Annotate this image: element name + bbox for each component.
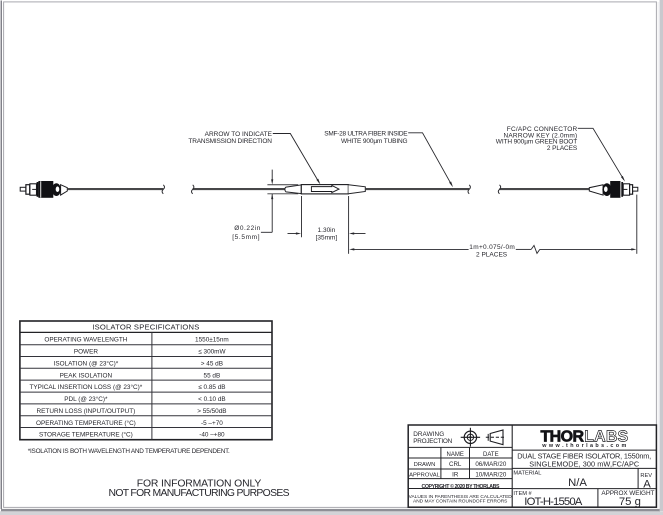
svg-text:POWER: POWER [74, 349, 99, 356]
svg-text:> 45 dB: > 45 dB [201, 361, 223, 368]
svg-text:*ISOLATION IS BOTH WAVELENGTH: *ISOLATION IS BOTH WAVELENGTH AND TEMPER… [28, 448, 230, 455]
svg-text:w w w . t h o r l a b s . c o: w w w . t h o r l a b s . c o m [541, 443, 626, 449]
svg-text:APPROVAL: APPROVAL [409, 472, 441, 478]
svg-text:A: A [643, 478, 651, 490]
svg-text:MATERIAL: MATERIAL [513, 470, 541, 476]
svg-text:OPERATING WAVELENGTH: OPERATING WAVELENGTH [44, 336, 127, 343]
svg-text:IOT-H-1550A: IOT-H-1550A [524, 496, 582, 508]
svg-text:OPERATING TEMPERATURE (°C): OPERATING TEMPERATURE (°C) [36, 419, 136, 427]
svg-text:1550±15nm: 1550±15nm [195, 336, 229, 343]
svg-text:75 g: 75 g [619, 496, 641, 508]
svg-text:-40 –+80: -40 –+80 [199, 432, 225, 439]
svg-text:CRL: CRL [449, 461, 462, 468]
svg-text:TYPICAL INSERTION LOSS (@ 23°C: TYPICAL INSERTION LOSS (@ 23°C)* [30, 383, 143, 391]
svg-text:[35mm]: [35mm] [316, 234, 338, 241]
svg-text:1m+0.075/-0m: 1m+0.075/-0m [469, 244, 515, 251]
svg-text:Ø0.22in: Ø0.22in [234, 225, 261, 232]
svg-text:WHITE 900µm TUBING: WHITE 900µm TUBING [341, 138, 408, 145]
svg-text:ISOLATION (@ 23°C)*: ISOLATION (@ 23°C)* [54, 360, 119, 368]
svg-text:NAME: NAME [447, 452, 464, 458]
svg-text:2 PLACES: 2 PLACES [476, 251, 508, 258]
svg-text:SINGLEMODE, 300 mW,FC/APC: SINGLEMODE, 300 mW,FC/APC [529, 459, 639, 468]
svg-text:1.30in: 1.30in [318, 227, 336, 234]
svg-text:ISOLATOR SPECIFICATIONS: ISOLATOR SPECIFICATIONS [92, 322, 199, 331]
svg-text:N/A: N/A [568, 477, 587, 489]
svg-text:DRAWING: DRAWING [413, 431, 444, 438]
svg-text:ARROW TO INDICATE: ARROW TO INDICATE [205, 131, 273, 138]
svg-text:PEAK ISOLATION: PEAK ISOLATION [60, 372, 113, 379]
svg-text:06/MAR/20: 06/MAR/20 [475, 461, 507, 468]
svg-text:SMF-28 ULTRA FIBER INSIDE: SMF-28 ULTRA FIBER INSIDE [324, 131, 408, 138]
svg-text:< 0.10 dB: < 0.10 dB [198, 396, 226, 403]
svg-text:COPYRIGHT © 2020 BY THORLABS: COPYRIGHT © 2020 BY THORLABS [422, 483, 501, 490]
svg-text:IR: IR [452, 471, 459, 478]
svg-text:DRAWN: DRAWN [414, 462, 436, 468]
svg-text:2 PLACES: 2 PLACES [547, 145, 578, 152]
svg-text:≤ 0.85 dB: ≤ 0.85 dB [198, 384, 225, 391]
svg-text:[5.5mm]: [5.5mm] [232, 234, 259, 241]
svg-text:10/MAR/20: 10/MAR/20 [475, 472, 507, 479]
svg-text:NOT FOR MANUFACTURING PURPOSES: NOT FOR MANUFACTURING PURPOSES [109, 488, 290, 499]
svg-text:STORAGE TEMPERATURE (°C): STORAGE TEMPERATURE (°C) [39, 431, 133, 439]
svg-text:AND MAY CONTAIN ROUNDOFF ERROR: AND MAY CONTAIN ROUNDOFF ERRORS [413, 499, 507, 505]
svg-text:TRANSMISSION DIRECTION: TRANSMISSION DIRECTION [188, 138, 272, 145]
svg-text:DATE: DATE [483, 452, 499, 458]
svg-text:≤ 300mW: ≤ 300mW [198, 349, 226, 356]
svg-text:PROJECTION: PROJECTION [413, 438, 452, 445]
svg-text:-5 –+70: -5 –+70 [201, 420, 223, 427]
svg-text:55 dB: 55 dB [204, 372, 221, 379]
svg-text:RETURN LOSS (INPUT/OUTPUT): RETURN LOSS (INPUT/OUTPUT) [37, 408, 136, 415]
svg-text:PDL (@ 23°C)*: PDL (@ 23°C)* [64, 395, 108, 403]
svg-text:> 55/50dB: > 55/50dB [197, 408, 226, 415]
